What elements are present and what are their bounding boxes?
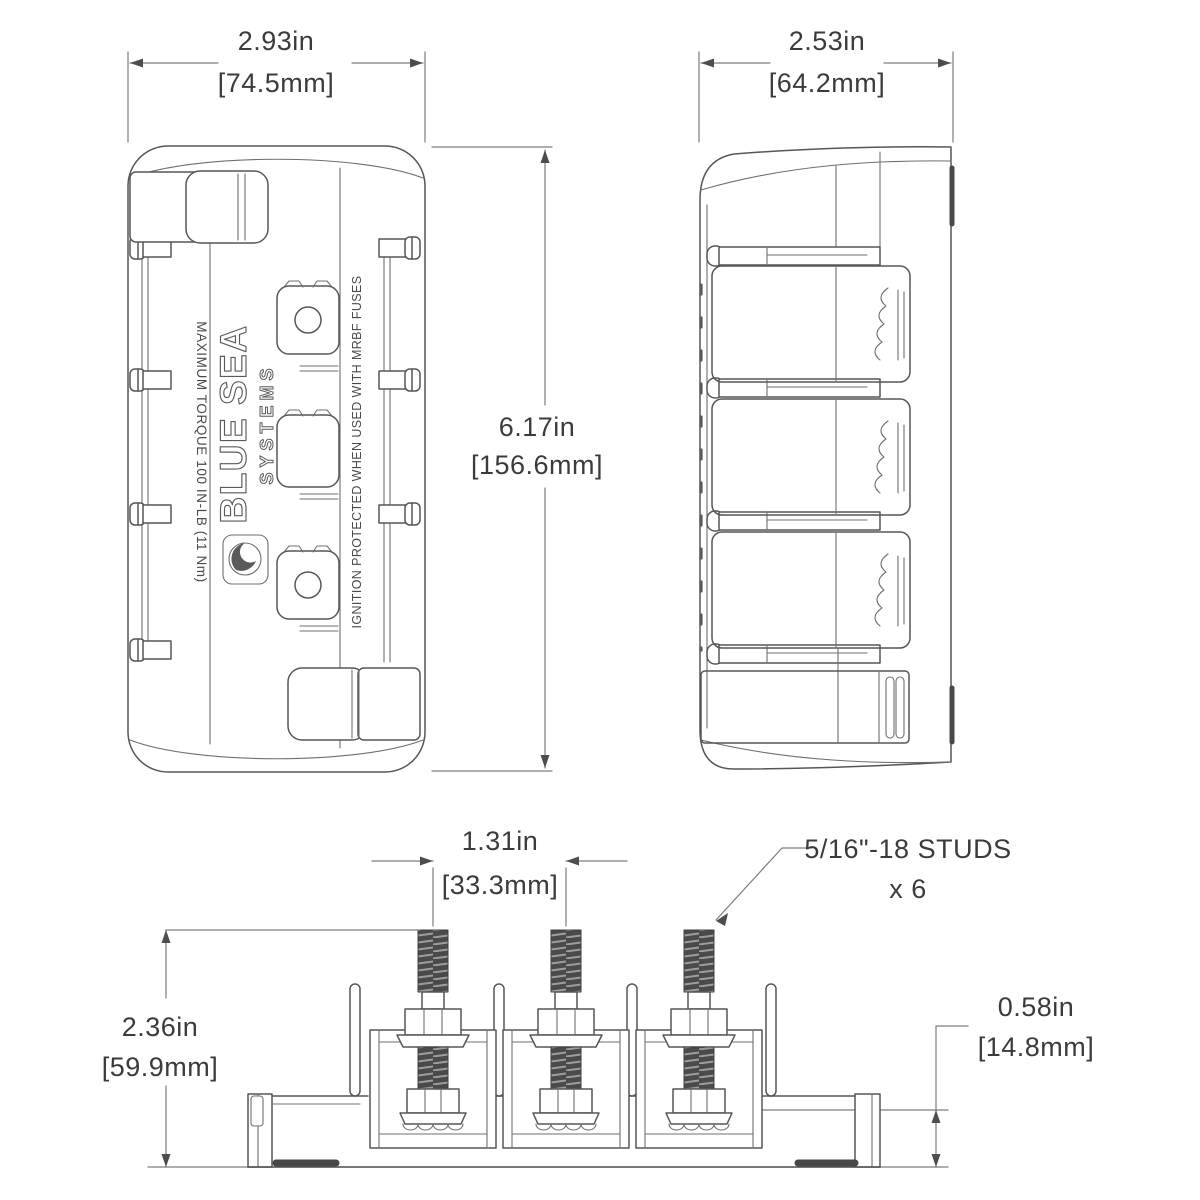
stud-2 [530, 930, 602, 1130]
studs-callout-line2: x 6 [889, 874, 927, 904]
dim-front-width-mm: [74.5mm] [218, 68, 335, 98]
front-view: MAXIMUM TORQUE 100 IN-LB (11 Nm) IGNITIO… [128, 26, 603, 772]
stud-3 [663, 930, 735, 1130]
fuse-pad-1 [277, 281, 339, 354]
clip-right-1 [379, 237, 420, 259]
dim-base-height-in: 0.58in [998, 992, 1075, 1022]
clip-left-4 [130, 639, 171, 661]
side-fuse-body-1 [712, 266, 910, 382]
front-bottom-cap-seam [130, 740, 423, 759]
cover-latch-bottom [288, 668, 420, 740]
stud-spacing-dimension: 1.31in [33.3mm] [372, 826, 627, 926]
torque-label: MAXIMUM TORQUE 100 IN-LB (11 Nm) [194, 321, 209, 583]
studs-callout: 5/16"-18 STUDS x 6 [716, 834, 1012, 926]
side-width-dimension: 2.53in [64.2mm] [699, 26, 953, 142]
dim-stud-spacing-mm: [33.3mm] [442, 870, 559, 900]
cover-latch-top [130, 171, 268, 243]
side-clip-arm-2 [707, 378, 880, 398]
logo-text-blue-sea: BLUE SEA [213, 324, 254, 523]
fuse-pad-3 [277, 546, 339, 619]
dim-front-height-mm: [156.6mm] [471, 450, 603, 480]
logo-text-systems: SYSTEMS [257, 363, 277, 484]
technical-drawing-page: MAXIMUM TORQUE 100 IN-LB (11 Nm) IGNITIO… [0, 0, 1200, 1200]
side-fuse-body-3 [712, 532, 910, 648]
stud-view: 1.31in [33.3mm] 2.36in [59.9mm] 0.58in [… [102, 826, 1095, 1167]
dim-overall-height-in: 2.36in [122, 1012, 199, 1042]
blue-sea-logo: BLUE SEA SYSTEMS [213, 324, 277, 584]
dim-side-width-mm: [64.2mm] [769, 68, 886, 98]
dim-front-height-in: 6.17in [499, 412, 576, 442]
dim-stud-spacing-in: 1.31in [462, 826, 539, 856]
stud-1 [397, 930, 469, 1130]
dim-side-width-in: 2.53in [789, 26, 866, 56]
dim-base-height-mm: [14.8mm] [978, 1032, 1095, 1062]
holder-post-4 [766, 984, 776, 1096]
studs-callout-line1: 5/16"-18 STUDS [804, 834, 1011, 864]
dim-overall-height-mm: [59.9mm] [102, 1052, 219, 1082]
front-width-dimension: 2.93in [74.5mm] [128, 26, 425, 142]
clip-left-2 [130, 369, 171, 391]
clip-left-3 [130, 503, 171, 525]
base-height-dimension: 0.58in [14.8mm] [932, 992, 1095, 1167]
side-clip-arm-1 [707, 246, 880, 266]
fuse-pad-2 [277, 410, 339, 487]
side-fuse-body-2 [712, 399, 910, 515]
holder-post-1 [350, 984, 360, 1096]
clip-right-2 [379, 369, 420, 391]
fuse-block-dimension-drawing: MAXIMUM TORQUE 100 IN-LB (11 Nm) IGNITIO… [0, 0, 1200, 1200]
clip-right-3 [379, 503, 420, 525]
blue-sea-emblem-icon [223, 535, 268, 584]
side-body-outline [700, 147, 951, 769]
side-clip-arm-3 [707, 511, 880, 531]
ignition-protected-label: IGNITION PROTECTED WHEN USED WITH MRBF F… [350, 275, 364, 628]
front-height-dimension: 6.17in [156.6mm] [432, 147, 603, 771]
dim-front-width-in: 2.93in [238, 26, 315, 56]
side-view: 2.53in [64.2mm] [699, 26, 953, 769]
side-clip-arm-4 [707, 644, 880, 664]
